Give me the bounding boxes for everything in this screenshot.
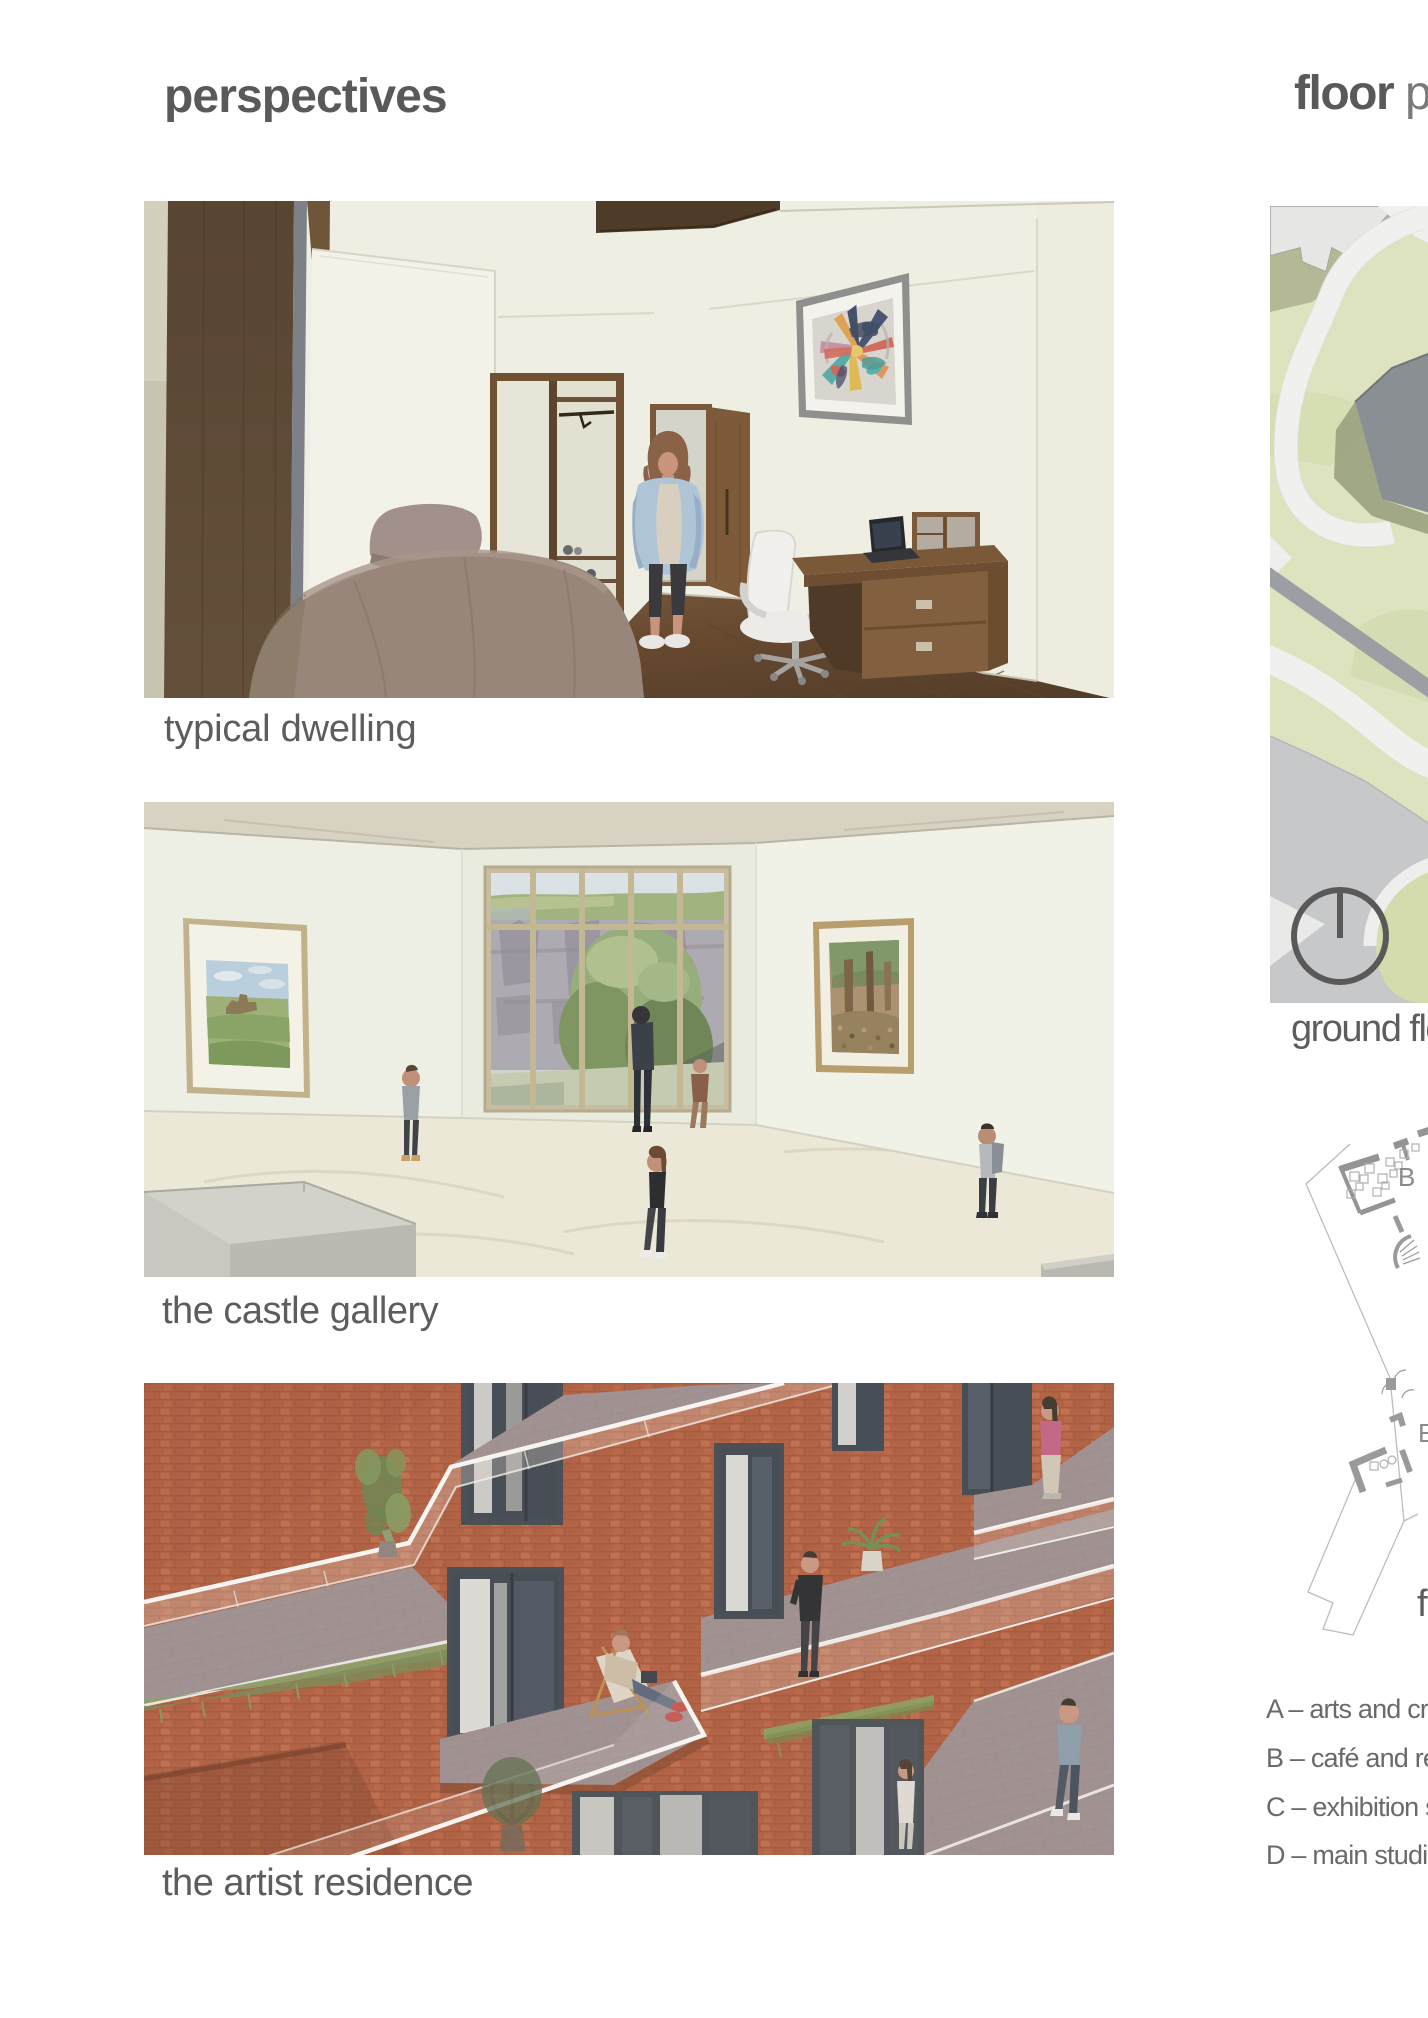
svg-text:E: E xyxy=(1418,1418,1428,1448)
svg-text:B: B xyxy=(1398,1162,1415,1192)
